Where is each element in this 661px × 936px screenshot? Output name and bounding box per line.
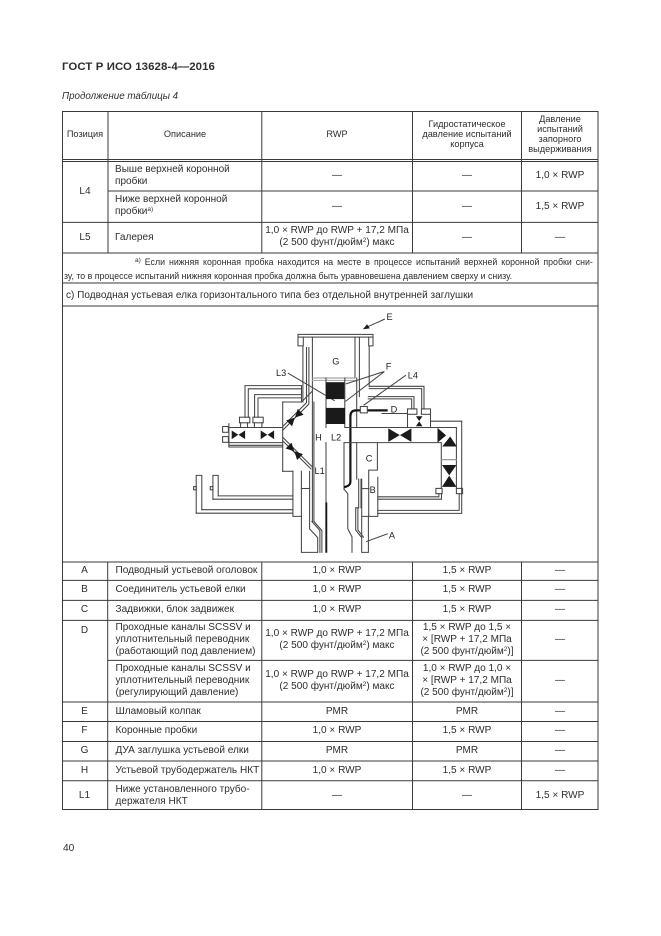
svg-text:L3: L3 [276, 368, 286, 378]
svg-text:L4: L4 [408, 371, 418, 381]
svg-text:L1: L1 [315, 466, 325, 476]
svg-text:E: E [387, 312, 393, 322]
svg-text:L2: L2 [331, 433, 341, 443]
svg-text:G: G [332, 357, 339, 367]
svg-text:C: C [366, 454, 373, 464]
svg-text:H: H [315, 433, 322, 443]
svg-text:A: A [389, 530, 396, 540]
svg-text:F: F [386, 362, 392, 372]
svg-text:B: B [370, 485, 376, 495]
svg-text:D: D [391, 404, 398, 414]
